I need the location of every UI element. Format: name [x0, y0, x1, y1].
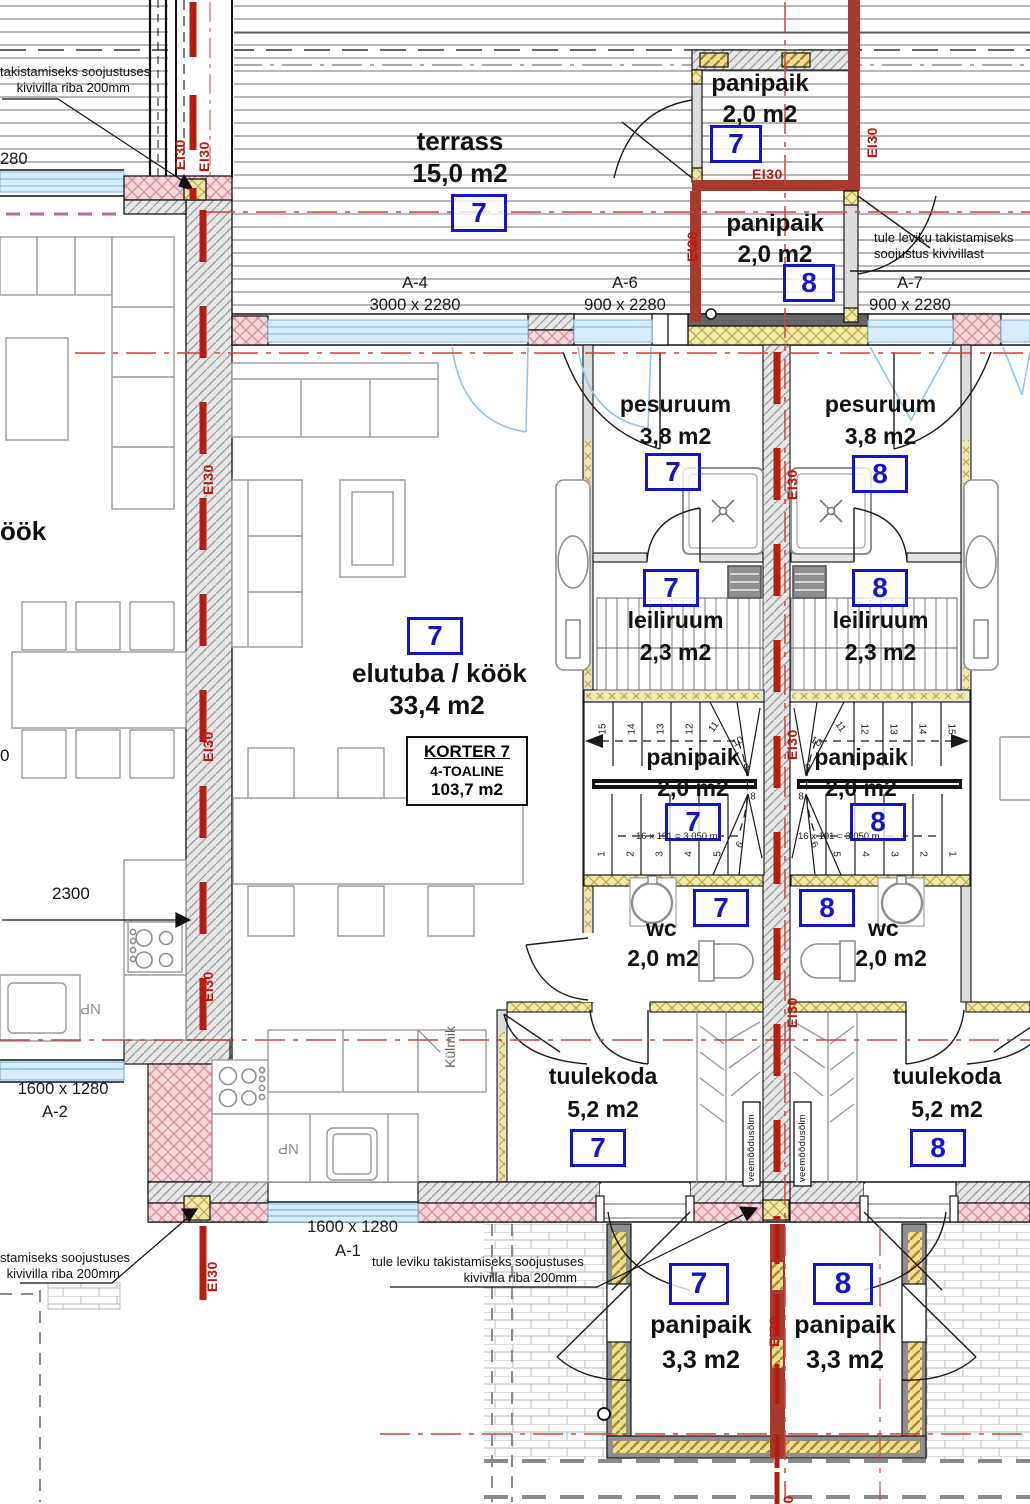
note-line: tule leviku takistamiseks [874, 230, 1030, 246]
stair-number: 2 [626, 851, 637, 857]
window-code-a7: A-7 [870, 274, 950, 293]
room-name-partial-kook: öök [0, 516, 46, 547]
stair-number: 3 [655, 851, 666, 857]
note-bottom-left: stamiseks soojustuses kivivilla riba 200… [0, 1250, 120, 1281]
kitchen-label-np-unit7: NP [278, 1140, 299, 1157]
stair-annotation-8: 16 x 191 = 3,050 m [798, 831, 880, 842]
stair-number: 13 [656, 723, 667, 734]
stair-number: 15 [598, 723, 609, 734]
kitchen-label-fridge: Külmik [442, 1026, 458, 1068]
fire-rating-tag: EI30 [684, 231, 700, 262]
apartment-title: KORTER 7 [415, 742, 519, 762]
fire-rating-tag: EI30 [204, 1261, 220, 1292]
bottom-walls [0, 1040, 1030, 1222]
neighbor-window [0, 170, 124, 196]
room-name-panipaik-top7: panipaik [700, 70, 820, 98]
apartment-type: 4-TOALINE [415, 763, 519, 779]
room-area-leiliruum8: 2,3 m2 [798, 639, 963, 666]
unit-box-tuulekoda7: 7 [570, 1129, 626, 1167]
room-name-tuulekoda7: tuulekoda [544, 1063, 662, 1090]
room-area-terrass: 15,0 m2 [380, 158, 540, 189]
stair-number: 5 [713, 851, 724, 857]
room-area-leiliruum7: 2,3 m2 [593, 639, 758, 666]
fire-rating-tag: EI30 [196, 141, 212, 172]
room-area-elutuba: 33,4 m2 [352, 690, 522, 721]
note-top-right: tule leviku takistamiseks soojustus kivi… [874, 230, 1030, 261]
unit-box-shed7: 7 [669, 1263, 729, 1305]
note-line: takistamiseks soojustuses [0, 64, 130, 80]
unit-box-wc7: 7 [693, 889, 749, 927]
floor-plan: takistamiseks soojustuses kivivilla riba… [0, 0, 1030, 1504]
tech-label-water-meter-8: veemõõdusõlm [797, 1114, 808, 1182]
fire-rating-tag: EI30 [200, 971, 216, 1002]
room-area-pesuruum8: 3,8 m2 [798, 423, 963, 450]
window-size-a1: 1600 x 1280 [295, 1218, 410, 1237]
fire-rating-tag: EI30 [784, 469, 800, 500]
unit-box-pesuruum8: 8 [852, 455, 908, 493]
room-area-shed7: 3,3 m2 [636, 1346, 766, 1375]
room-name-pesuruum7: pesuruum [593, 391, 758, 418]
unit-box-tuulekoda8: 8 [910, 1129, 966, 1167]
room-area-wc7: 2,0 m2 [618, 945, 708, 972]
window-code-a6: A-6 [585, 274, 665, 293]
unit-box-wc8: 8 [799, 889, 855, 927]
room-name-pesuruum8: pesuruum [798, 391, 963, 418]
room-name-leiliruum7: leiliruum [593, 607, 758, 634]
room-name-leiliruum8: leiliruum [798, 607, 963, 634]
room-name-shed7: panipaik [636, 1311, 766, 1340]
unit-box-panipaik-top7: 7 [710, 125, 762, 163]
note-line: kivivilla riba 200mm [0, 1266, 120, 1282]
room-area-tuulekoda7: 5,2 m2 [544, 1096, 662, 1123]
unit-box-elutuba: 7 [407, 617, 463, 655]
window-code-a2: A-2 [15, 1103, 95, 1122]
apartment-area: 103,7 m2 [415, 780, 519, 800]
room-area-shed8: 3,3 m2 [780, 1346, 910, 1375]
dimension-partial-0: 0 [0, 746, 9, 766]
stair-number: 3 [889, 851, 900, 857]
note-top-left: takistamiseks soojustuses kivivilla riba… [0, 64, 130, 95]
stair-number: 8 [750, 792, 756, 803]
stair-annotation-7: 16 x 191 = 3,050 m [636, 831, 718, 842]
unit-box-pesuruum7: 7 [645, 453, 701, 491]
window-label-partial: 280 [0, 150, 28, 169]
apartment-info-box: KORTER 7 4-TOALINE 103,7 m2 [406, 736, 528, 806]
window-size-a7: 900 x 2280 [855, 296, 965, 315]
window-code-a1: A-1 [318, 1242, 378, 1261]
fire-rating-tag: EI30 [172, 139, 188, 170]
unit-box-panipaik-top8: 8 [783, 264, 835, 302]
room-area-tuulekoda8: 5,2 m2 [888, 1096, 1006, 1123]
room-area-panipaik-stairs8: 2,0 m2 [796, 775, 926, 802]
stair-number: 14 [627, 723, 638, 734]
dimension-2300: 2300 [52, 884, 90, 904]
room-name-panipaik-top8: panipaik [715, 210, 835, 238]
fire-rating-tag: EI30 [200, 731, 216, 762]
window-code-a4: A-4 [355, 274, 475, 293]
note-line: stamiseks soojustuses [0, 1250, 120, 1266]
stair-number: 2 [918, 851, 929, 857]
stair-number: 12 [685, 723, 696, 734]
unit-box-leiliruum7: 7 [643, 569, 699, 607]
unit-box-leiliruum8: 8 [852, 569, 908, 607]
stair-number: 4 [684, 851, 695, 857]
fire-rating-tag: EI30 [200, 464, 216, 495]
window-size-a6: 900 x 2280 [570, 296, 680, 315]
kitchen-label-np-neighbor: NP [80, 1000, 101, 1017]
room-name-panipaik-stairs7: panipaik [628, 744, 758, 771]
fire-rating-tag: EI30 [766, 1316, 782, 1347]
room-name-terrass: terrass [380, 126, 540, 157]
stair-number: 8 [798, 792, 804, 803]
room-name-wc7: wc [646, 915, 677, 942]
room-area-wc8: 2,0 m2 [846, 945, 936, 972]
fire-rating-tag: EI30 [752, 166, 783, 182]
stair-number: 1 [597, 851, 608, 857]
room-area-pesuruum7: 3,8 m2 [593, 423, 758, 450]
stair-number: 13 [888, 723, 899, 734]
tech-label-water-meter-7: veemõõdusõlm [746, 1114, 757, 1182]
stair-number: 14 [917, 723, 928, 734]
fire-rating-tag-partial: EI30 [780, 1495, 796, 1504]
stair-number: 4 [860, 851, 871, 857]
room-name-wc8: wc [868, 915, 899, 942]
stair-number: 15 [946, 723, 957, 734]
window-size-a4: 3000 x 2280 [340, 296, 490, 315]
stair-number: 5 [831, 851, 842, 857]
note-bottom-center: tule leviku takistamiseks soojustuses ki… [372, 1254, 577, 1285]
window-size-a2: 1600 x 1280 [8, 1080, 118, 1099]
room-area-panipaik-stairs7: 2,0 m2 [628, 775, 758, 802]
note-line: kivivilla riba 200mm [0, 80, 130, 96]
room-name-elutuba: elutuba / köök [352, 658, 522, 689]
stair-number: 12 [859, 723, 870, 734]
unit-box-shed8: 8 [813, 1263, 873, 1305]
stair-number: 1 [947, 851, 958, 857]
room-name-shed8: panipaik [780, 1311, 910, 1340]
fire-rating-tag: EI30 [864, 127, 880, 158]
note-line: tule leviku takistamiseks soojustuses [372, 1254, 577, 1270]
room-name-tuulekoda8: tuulekoda [888, 1063, 1006, 1090]
fire-rating-tag: EI30 [784, 729, 800, 760]
note-line: kivivilla riba 200mm [372, 1270, 577, 1286]
fire-rating-tag: EI30 [784, 997, 800, 1028]
note-line: soojustus kivivillast [874, 246, 1030, 262]
unit-box-terrass: 7 [451, 194, 507, 232]
